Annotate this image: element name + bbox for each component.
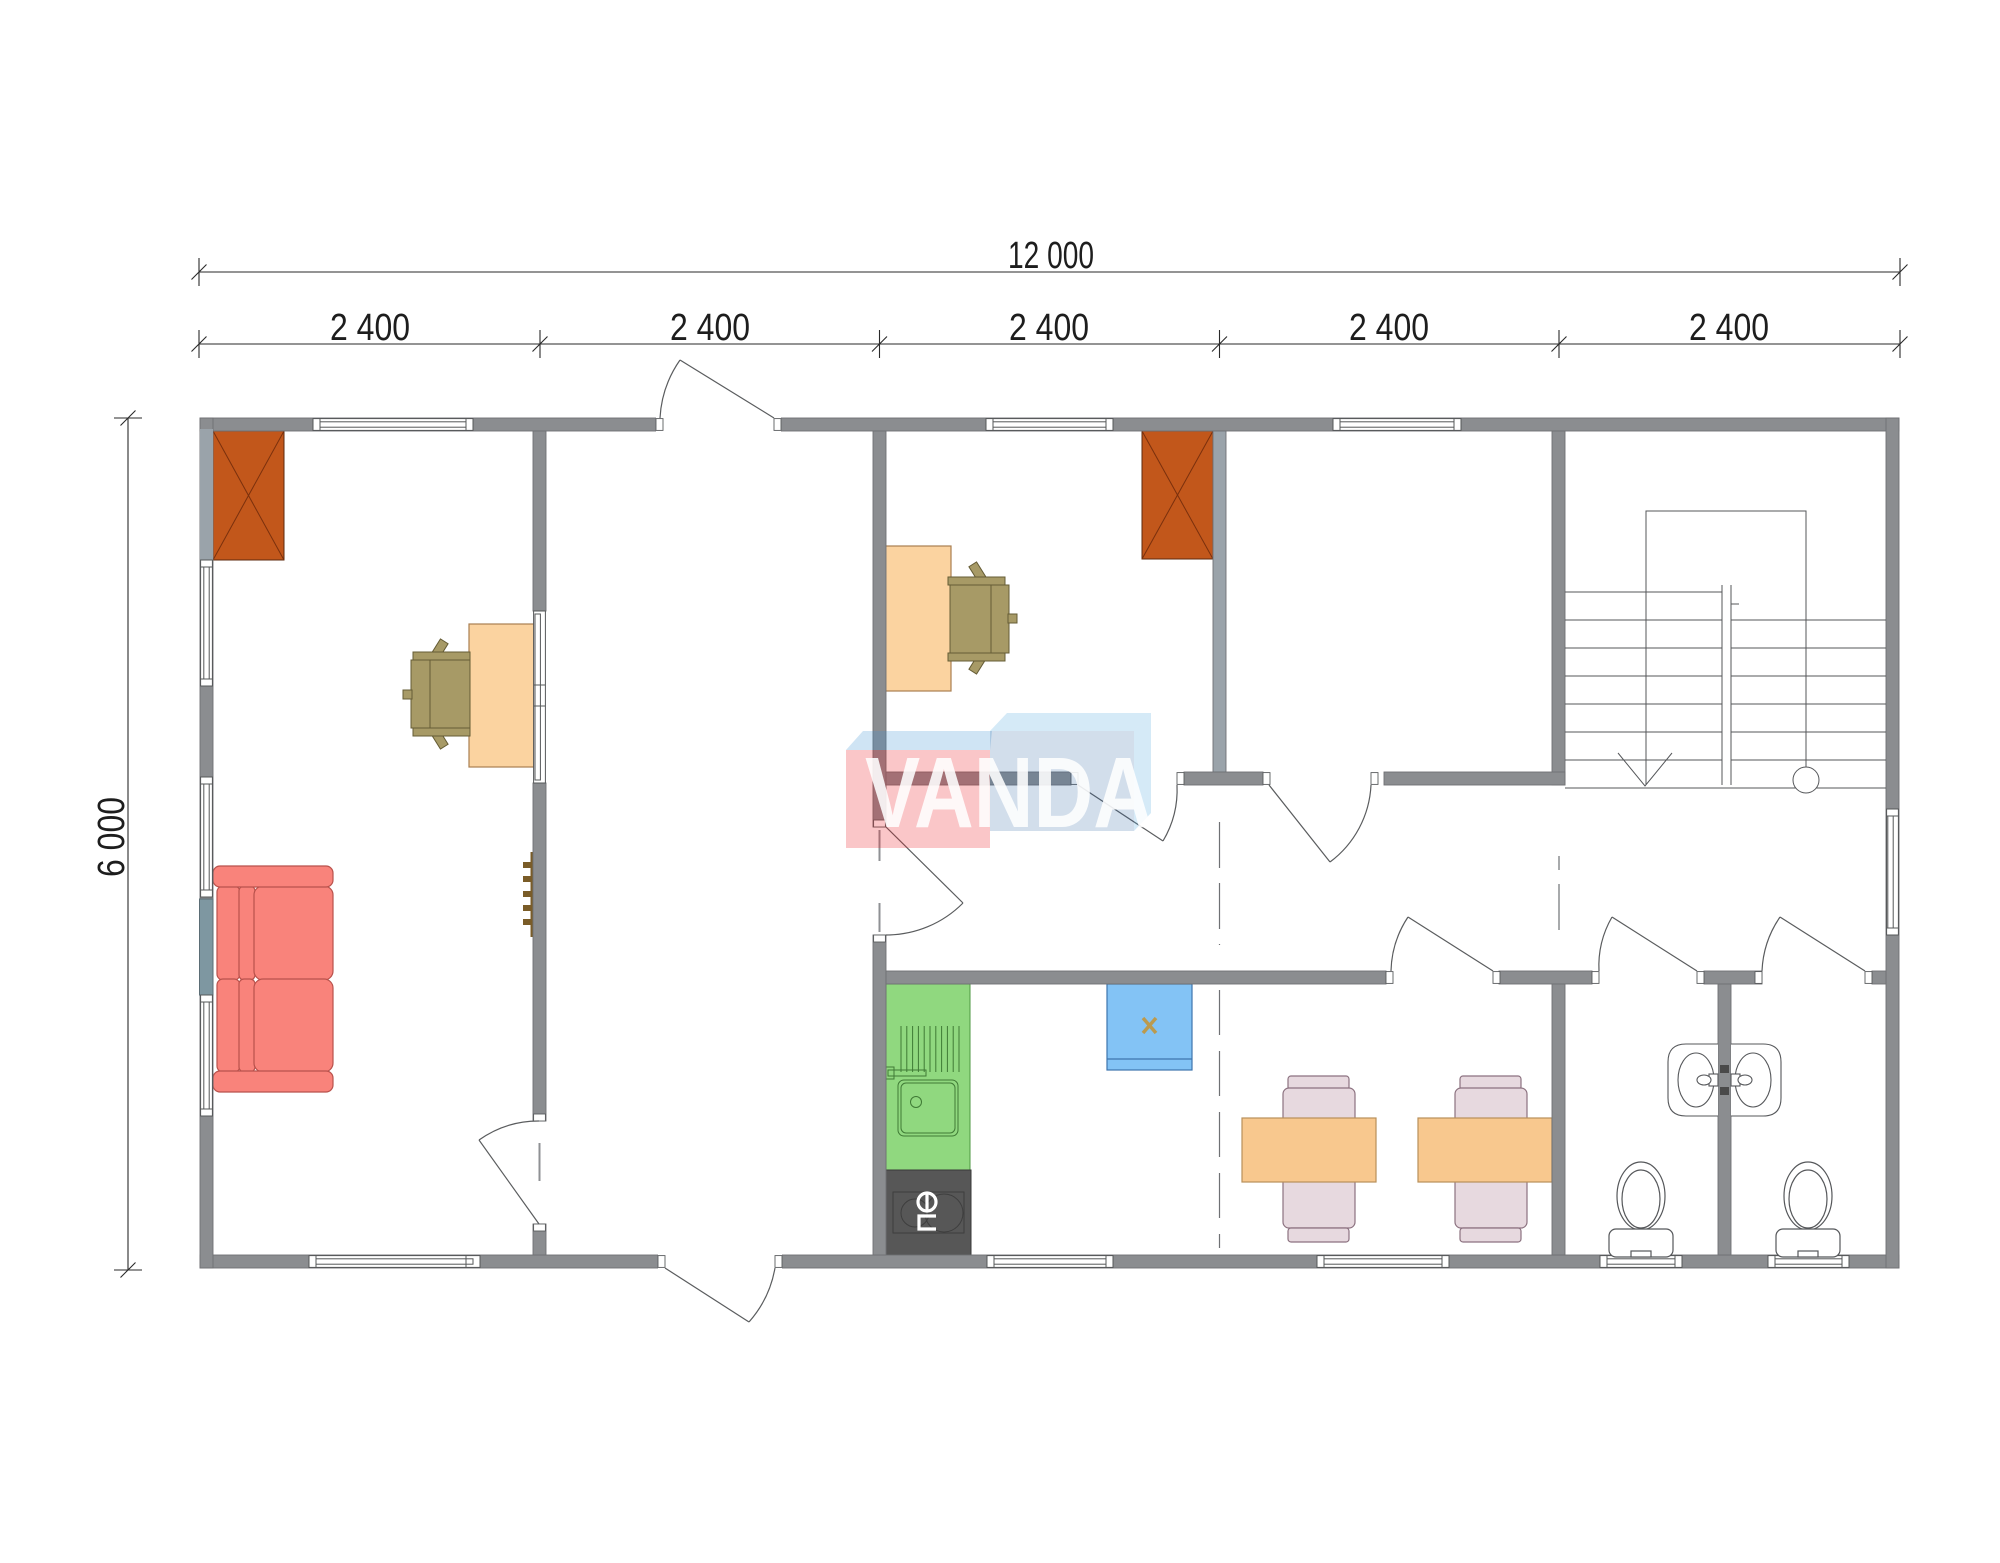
svg-text:2 400: 2 400 [1689, 307, 1769, 349]
svg-text:6 000: 6 000 [91, 797, 133, 877]
svg-text:2 400: 2 400 [670, 307, 750, 349]
svg-text:2 400: 2 400 [1009, 307, 1089, 349]
svg-text:2 400: 2 400 [330, 307, 410, 349]
svg-text:VANDA: VANDA [865, 737, 1153, 849]
svg-text:12 000: 12 000 [1008, 235, 1094, 277]
svg-text:2 400: 2 400 [1349, 307, 1429, 349]
